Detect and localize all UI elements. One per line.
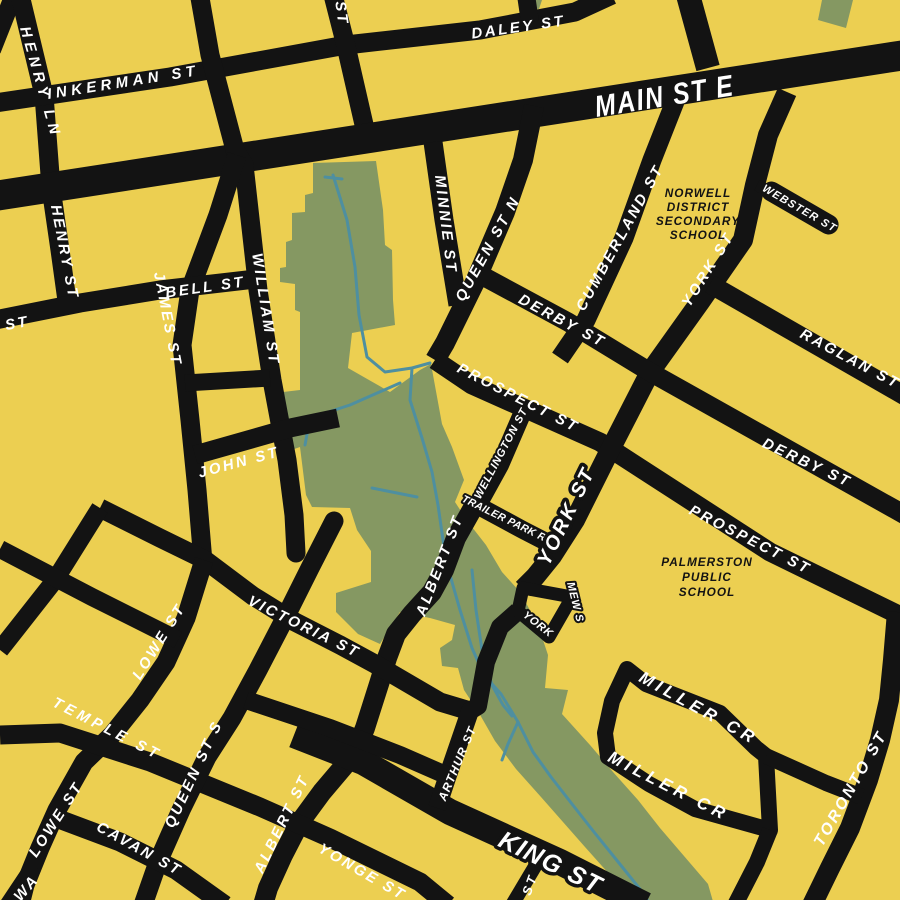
svg-text:PUBLIC: PUBLIC [682,570,732,584]
svg-text:SECONDARY: SECONDARY [656,214,740,228]
svg-text:SCHOOL: SCHOOL [679,585,735,599]
svg-text:ST: ST [331,0,351,27]
svg-text:PALMERSTON: PALMERSTON [661,555,753,569]
svg-text:SCHOOL: SCHOOL [670,228,726,242]
svg-text:NORWELL: NORWELL [665,186,731,200]
svg-text:DISTRICT: DISTRICT [667,200,730,214]
